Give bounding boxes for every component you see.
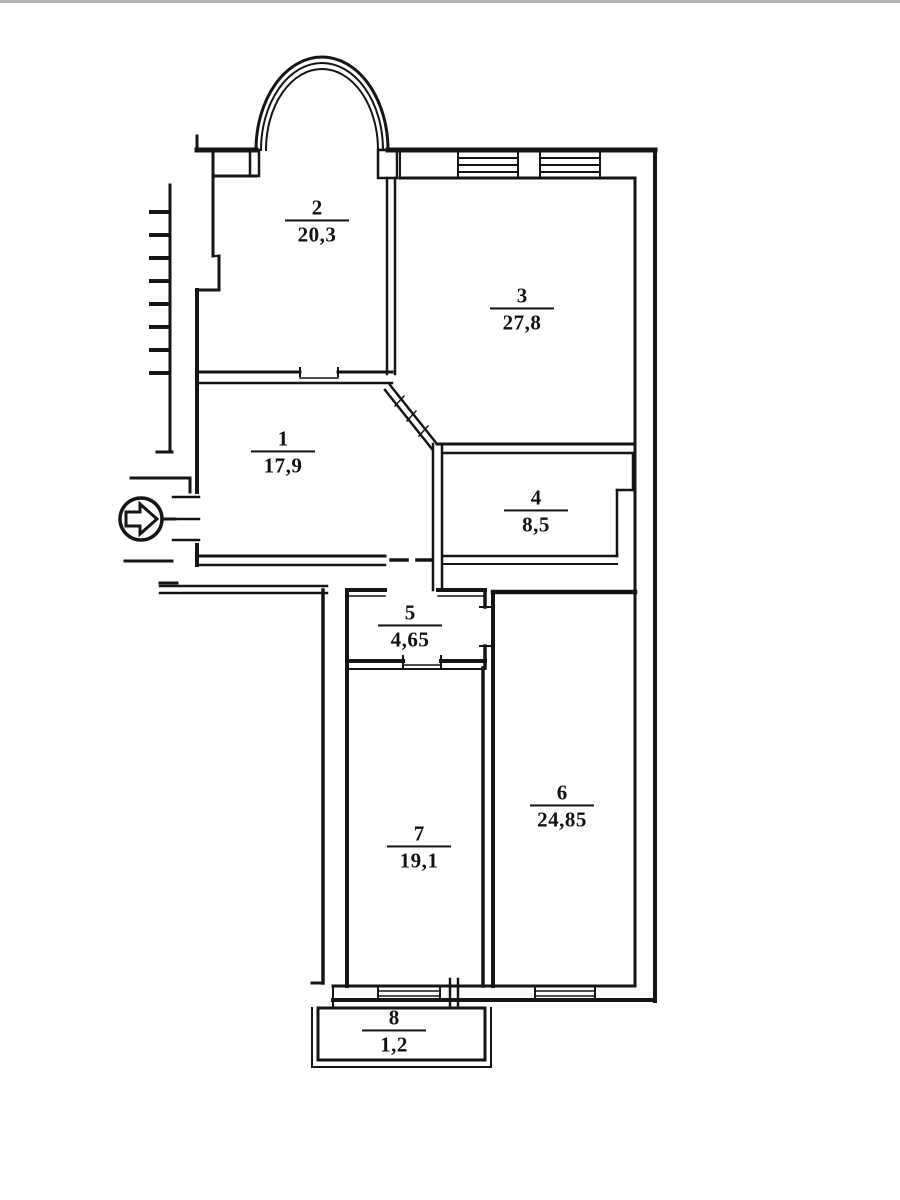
room-4-area: 8,5 <box>504 512 568 536</box>
room-1-area: 17,9 <box>251 453 315 477</box>
room-label-8: 8 1,2 <box>362 1006 426 1055</box>
entrance-arrow-icon <box>120 498 162 540</box>
room-5-area: 4,65 <box>378 627 442 651</box>
window-top-right <box>540 152 600 178</box>
window-top-left <box>458 152 518 178</box>
exterior-wall-top <box>388 150 655 178</box>
room-8-number: 8 <box>362 1006 426 1031</box>
arched-bay <box>250 57 397 178</box>
exterior-wall-top-left <box>197 136 256 176</box>
room-8-area: 1,2 <box>362 1032 426 1056</box>
exterior-wall-bottom <box>333 986 655 1008</box>
wall-room2-room3 <box>387 178 395 374</box>
room-7-area: 19,1 <box>387 848 451 872</box>
window-bottom-right <box>535 986 595 1000</box>
room-2-number: 2 <box>285 196 349 221</box>
site-boundary-fence <box>151 185 172 452</box>
room-label-2: 2 20,3 <box>285 196 349 245</box>
room-label-4: 4 8,5 <box>504 486 568 535</box>
room-6-area: 24,85 <box>530 807 594 831</box>
room-3-area: 27,8 <box>490 310 554 334</box>
room-7-number: 7 <box>387 822 451 847</box>
room-6-number: 6 <box>530 781 594 806</box>
floor-plan-drawing <box>0 0 900 1200</box>
room-1-number: 1 <box>251 427 315 452</box>
window-bottom-left <box>378 986 440 1000</box>
room-4-number: 4 <box>504 486 568 511</box>
exterior-wall-lower-left <box>160 583 327 983</box>
exterior-wall-right <box>635 150 655 1001</box>
room1-bottom-wall <box>197 556 431 565</box>
room-label-1: 1 17,9 <box>251 427 315 476</box>
room2-bottom-wall <box>197 368 392 383</box>
room-label-6: 6 24,85 <box>530 781 594 830</box>
room-5-number: 5 <box>378 601 442 626</box>
diagonal-wall <box>385 385 437 449</box>
wall-room3-room4 <box>437 444 635 453</box>
wall-room5-room7 <box>347 656 485 669</box>
room-label-3: 3 27,8 <box>490 284 554 333</box>
balcony-door <box>450 979 458 1008</box>
room-3-number: 3 <box>490 284 554 309</box>
room2-left-wall <box>197 176 219 492</box>
room-2-area: 20,3 <box>285 222 349 246</box>
room-label-7: 7 19,1 <box>387 822 451 871</box>
floor-plan-page: 1 17,9 2 20,3 3 27,8 4 8,5 5 4,65 6 24,8… <box>0 0 900 1200</box>
room-label-5: 5 4,65 <box>378 601 442 650</box>
